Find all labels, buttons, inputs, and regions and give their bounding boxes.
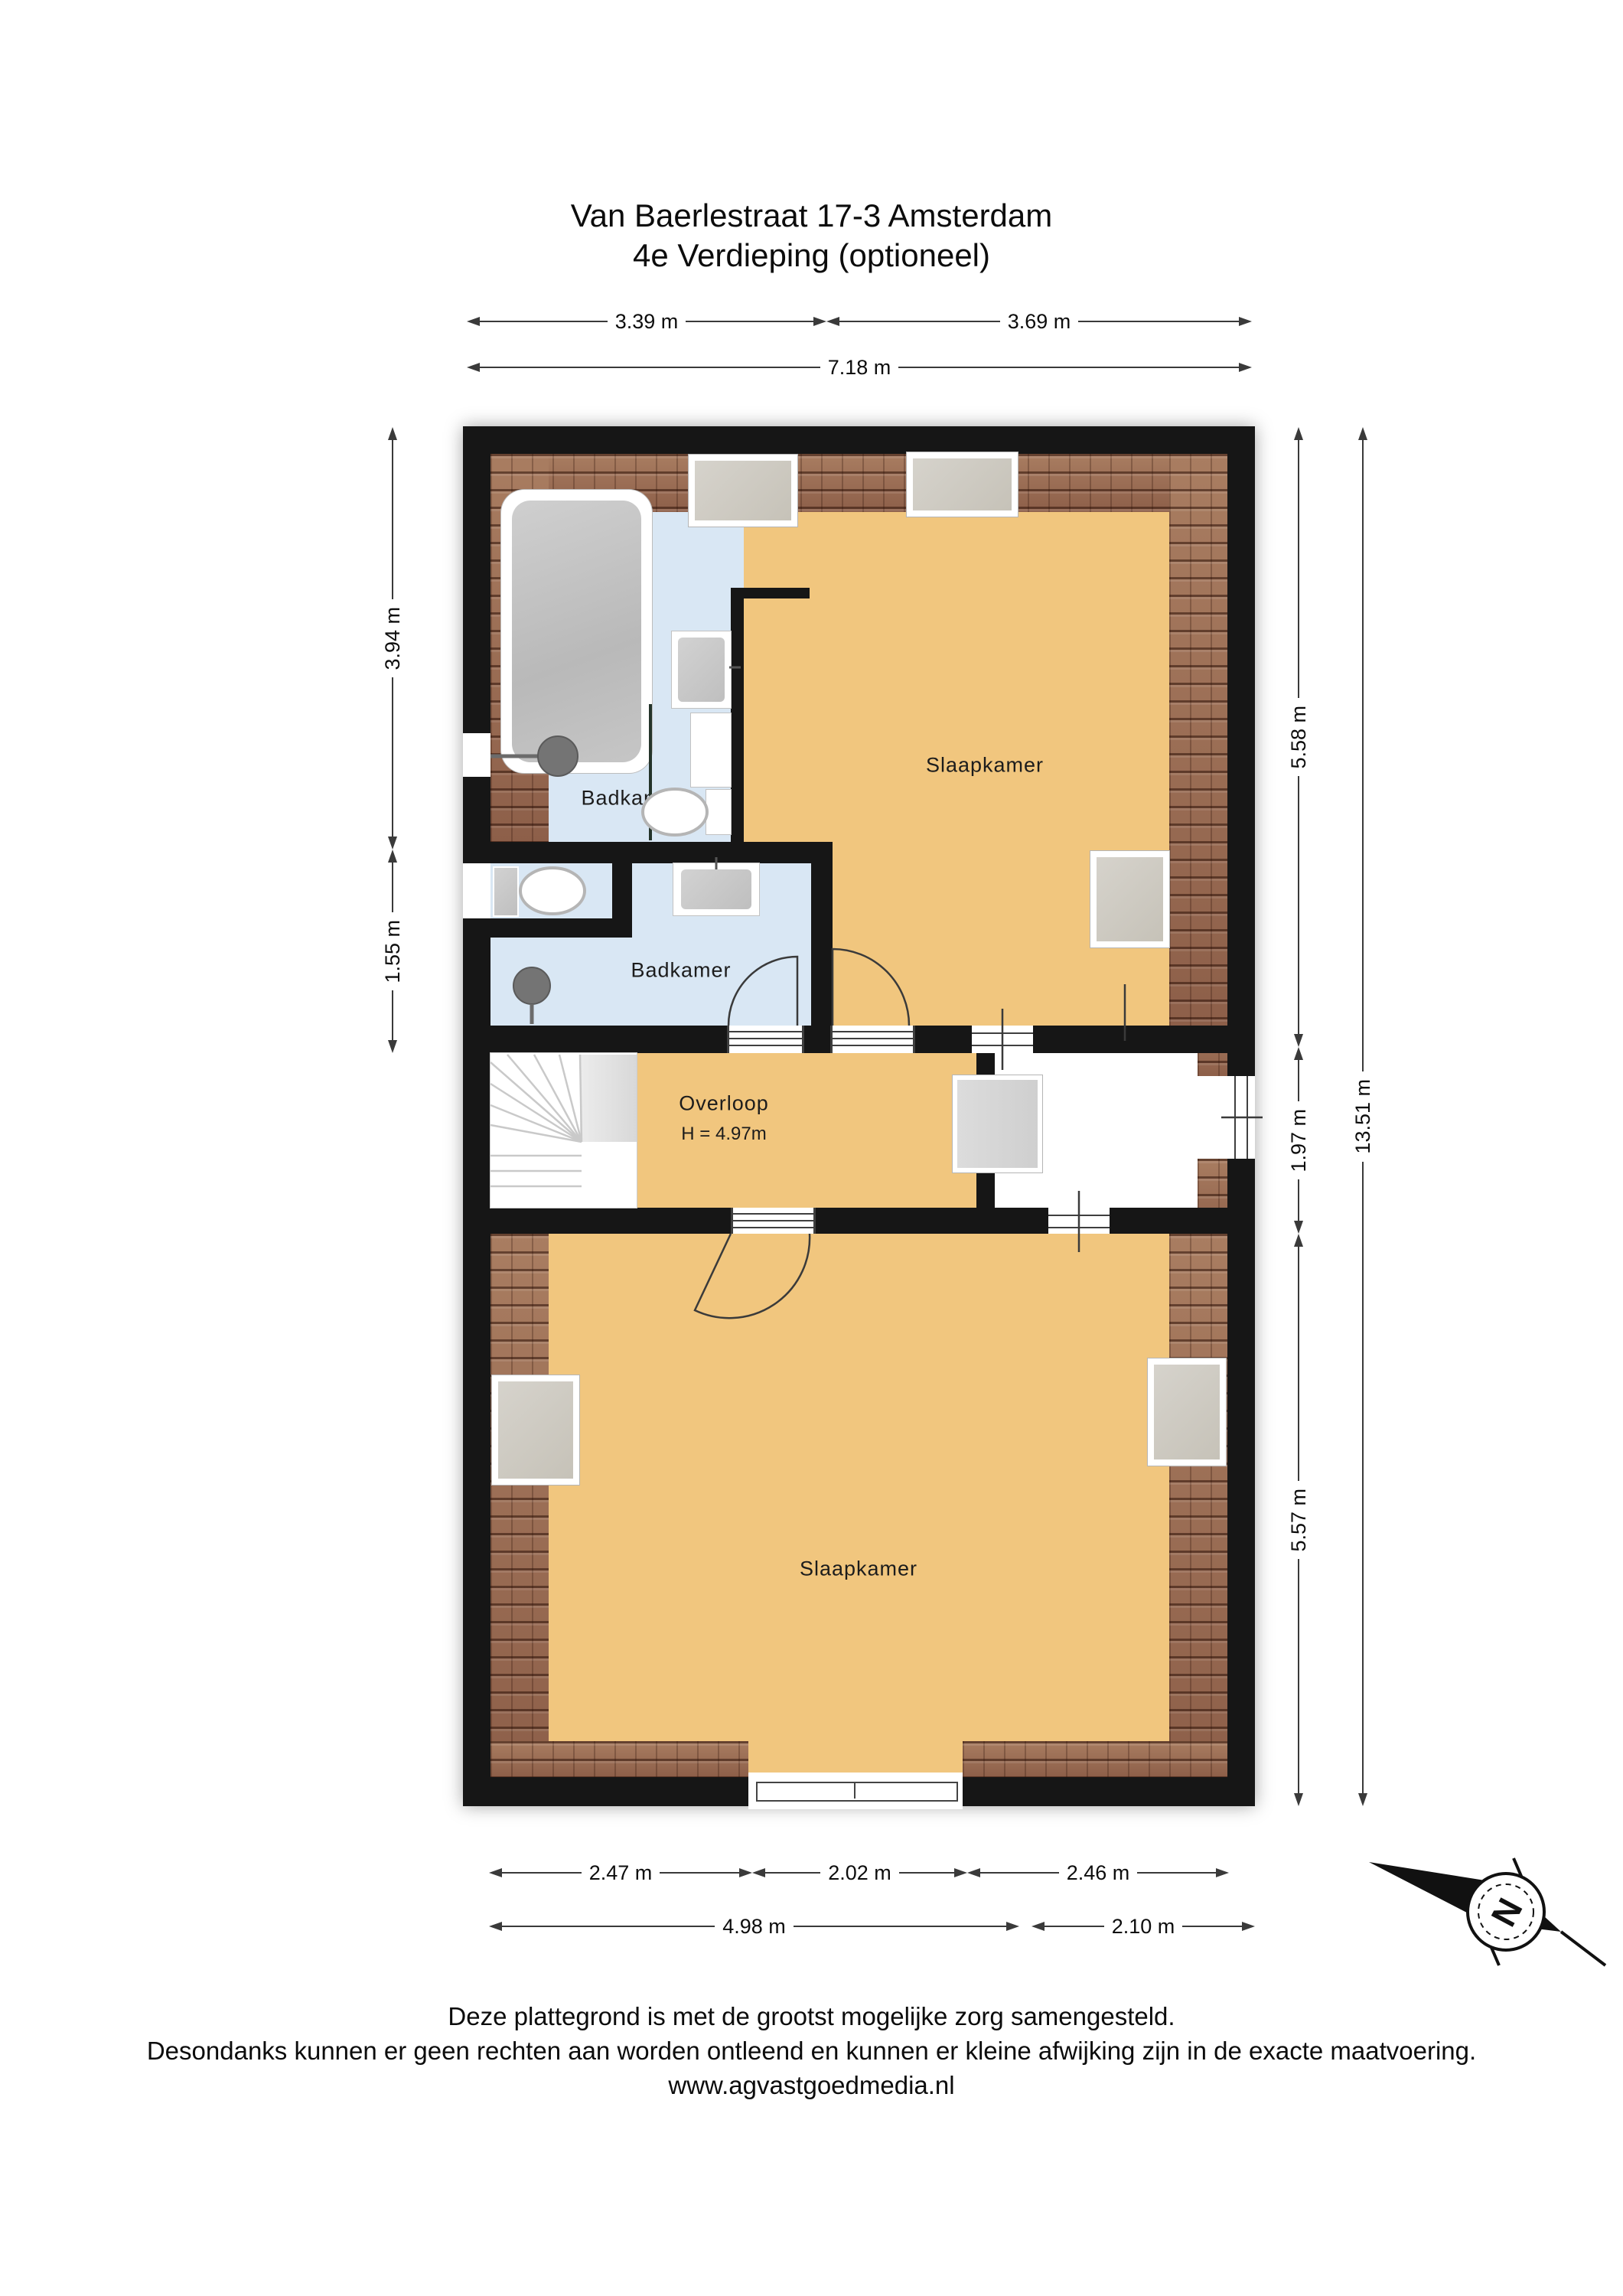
label-landing: Overloop [679,1092,769,1116]
dim-right-middle-label: 1.97 m [1287,1101,1311,1180]
dim-bottom-right-label: 2.46 m [1059,1861,1138,1885]
skylight-bedroom-top-north [907,452,1018,517]
wall-toilet-niche-south [490,918,632,938]
wall-bathroom-top-stub [731,588,810,598]
skylight-bedroom-bottom-east [1148,1358,1226,1466]
bathtub [501,490,652,773]
title-address: Van Baerlestraat 17-3 Amsterdam [0,196,1623,236]
window-void-east [1227,1076,1255,1159]
dim-bottom-total-right-label: 2.10 m [1104,1915,1183,1939]
roof-strip-left-bottom [490,1234,549,1777]
dim-bottom-center: 2.02 m [752,1862,967,1883]
title-floor: 4e Verdieping (optioneel) [0,236,1623,276]
compass-north-label: N [1483,1892,1530,1933]
window-void-south [1048,1208,1110,1234]
label-landing-height: H = 4.97m [681,1124,766,1145]
dim-left-upper: 3.94 m [381,427,404,850]
sink-bathroom-mid-basin [681,869,751,909]
sink-bathroom-top [672,631,731,708]
skylight-bedroom-bottom-west-glass [498,1381,573,1479]
dim-left-lower: 1.55 m [381,850,404,1053]
label-bedroom-bottom: Slaapkamer [800,1557,917,1581]
cabinet-landing [953,1075,1042,1172]
window-bedroom-bottom-frame [756,1782,958,1802]
door-bathroom-mid [727,1026,804,1053]
label-bathroom-mid: Badkamer [631,959,731,983]
door-bedroom-top [830,1026,915,1053]
page-title: Van Baerlestraat 17-3 Amsterdam 4e Verdi… [0,196,1623,276]
dim-bottom-total-left-label: 4.98 m [715,1915,794,1939]
wall-bathroom-top-east [731,588,744,842]
dim-top-right-label: 3.69 m [1000,310,1079,334]
dim-right-lower-label: 5.57 m [1287,1481,1311,1560]
window-bedroom-bottom-mullion [854,1782,855,1799]
footer-line-1: Deze plattegrond is met de grootst mogel… [0,1999,1623,2033]
sink-bathroom-mid [673,863,759,915]
skylight-bedroom-top-north-glass [913,458,1012,510]
wall-gap-shower-top [463,733,490,777]
wall-gap-toilet-mid [463,863,490,918]
dim-right-middle: 1.97 m [1287,1047,1310,1234]
dim-top-left: 3.39 m [467,311,826,332]
dim-top-left-label: 3.39 m [608,310,686,334]
toilet-top-tank [706,790,731,834]
wall-bathrooms-divider [490,842,833,863]
skylight-bathroom-top-glass [695,461,791,520]
toilet-mid-tank [494,868,517,915]
wall-bathroom-mid-east [811,842,833,1026]
window-landing-north [972,1026,1033,1053]
skylight-bedroom-bottom-west [492,1375,579,1485]
roof-strip-right-top [1169,454,1227,1026]
dim-right-total: 13.51 m [1351,427,1374,1806]
dim-bottom-total-right: 2.10 m [1031,1916,1255,1937]
roof-strip-bottom-left [490,1741,748,1777]
footer-disclaimer: Deze plattegrond is met de grootst mogel… [0,1999,1623,2102]
dim-bottom-total-left: 4.98 m [489,1916,1019,1937]
dim-right-upper-label: 5.58 m [1287,698,1311,777]
dim-right-upper: 5.58 m [1287,427,1310,1047]
skylight-bedroom-top-east [1090,851,1169,947]
dim-right-total-label: 13.51 m [1351,1071,1375,1162]
dim-bottom-center-label: 2.02 m [820,1861,899,1885]
footer-website: www.agvastgoedmedia.nl [0,2068,1623,2102]
dim-left-upper-label: 3.94 m [381,599,405,678]
dim-bottom-right: 2.46 m [967,1862,1229,1883]
dim-bottom-left-label: 2.47 m [582,1861,660,1885]
dim-top-total: 7.18 m [467,357,1252,378]
bathtub-basin [512,501,641,762]
compass-rose: N [1369,1858,1605,1965]
skylight-bathroom-top [689,455,797,527]
skylight-bedroom-top-east-glass [1097,857,1163,941]
footer-line-2: Desondanks kunnen er geen rechten aan wo… [0,2033,1623,2068]
roof-strip-bottom-right [963,1741,1227,1777]
stairs-upper-flight [580,1055,637,1142]
room-bathroom-mid [490,863,816,1026]
dim-top-right: 3.69 m [826,311,1252,332]
dim-top-total-label: 7.18 m [820,356,899,380]
counter-bathroom-top [691,713,731,787]
label-bedroom-top: Slaapkamer [926,754,1044,778]
door-bedroom-bottom [731,1208,816,1234]
skylight-bedroom-bottom-east-glass [1154,1365,1220,1459]
roof-strip-right-bottom [1169,1234,1227,1777]
sink-bathroom-top-basin [678,638,725,702]
floorplan-page: Van Baerlestraat 17-3 Amsterdam 4e Verdi… [0,0,1623,2296]
dim-right-lower: 5.57 m [1287,1234,1310,1806]
wall-landing-south [463,1208,1255,1234]
room-bedroom-bottom [490,1234,1227,1777]
dim-left-lower-label: 1.55 m [381,912,405,991]
label-bathroom-top: Badkamer [581,787,681,810]
dim-bottom-left: 2.47 m [489,1862,752,1883]
